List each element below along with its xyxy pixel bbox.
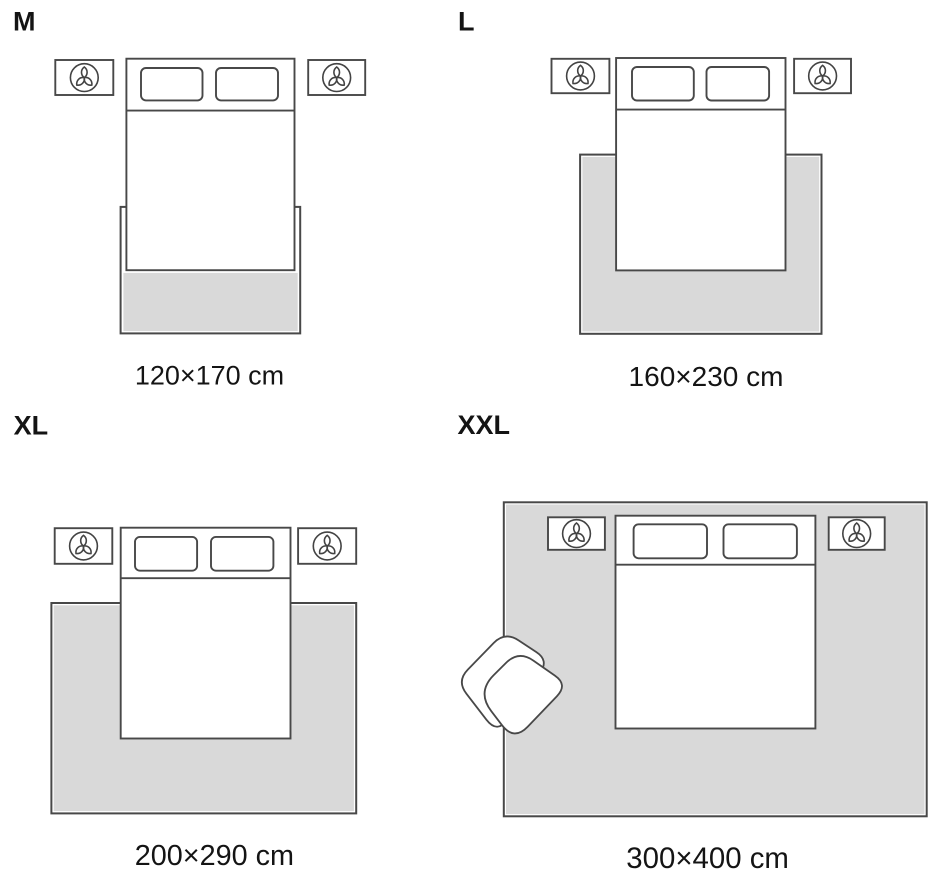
svg-text:300×400 cm: 300×400 cm — [626, 842, 789, 875]
svg-text:M: M — [13, 7, 36, 37]
svg-text:160×230 cm: 160×230 cm — [629, 361, 784, 392]
svg-text:L: L — [458, 6, 475, 36]
svg-text:XXL: XXL — [458, 410, 511, 440]
svg-text:XL: XL — [14, 410, 49, 440]
svg-text:200×290 cm: 200×290 cm — [135, 840, 294, 872]
svg-text:120×170 cm: 120×170 cm — [135, 361, 284, 391]
